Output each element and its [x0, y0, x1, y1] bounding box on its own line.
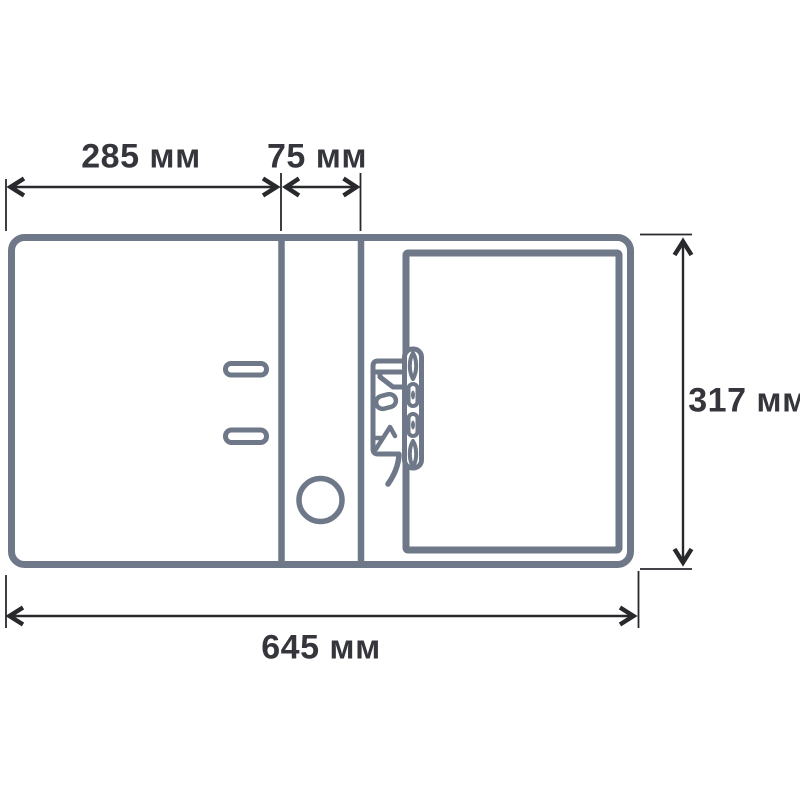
lever-arch-mechanism: [373, 349, 422, 484]
dimension-diagram: 285 мм 75 мм 317 мм 645 мм: [0, 0, 800, 800]
mechanism-lever-handle: [388, 455, 399, 484]
mechanism-rivet-top: [410, 353, 416, 379]
spine-label-slot-top: [226, 364, 267, 376]
dimension-285: [6, 173, 281, 231]
dimension-645: [6, 571, 639, 628]
dim-label-height: 317 мм: [688, 382, 800, 421]
binder-drawing: [0, 0, 800, 800]
mechanism-pin-lower: [411, 421, 415, 430]
dimension-317: [640, 235, 692, 570]
dim-label-total-width: 645 мм: [261, 629, 380, 668]
finger-hole: [299, 479, 342, 522]
spine-label-slot-bottom: [226, 430, 267, 443]
binder-outer-edge: [12, 238, 631, 565]
dim-label-spine-width: 75 мм: [267, 138, 367, 177]
dimension-lines-group: [6, 173, 692, 628]
mechanism-rivet-bottom: [410, 441, 416, 467]
dim-label-cover-width: 285 мм: [81, 138, 200, 177]
mechanism-pin-upper: [411, 391, 415, 400]
inner-cover-panel: [406, 253, 619, 550]
dimension-75: [286, 173, 361, 231]
binder-outline-group: [12, 237, 631, 565]
